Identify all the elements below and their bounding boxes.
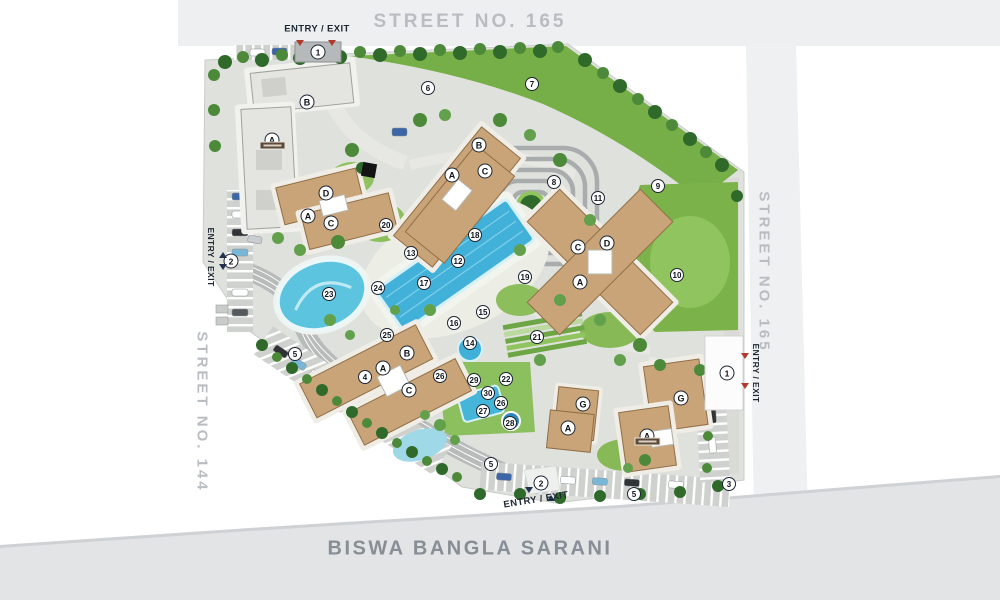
entry-exit-label: ENTRY / EXIT xyxy=(206,227,216,286)
site-marker-26: 26 xyxy=(433,369,447,383)
gate-arrow-icon xyxy=(219,264,227,274)
site-marker-14: 14 xyxy=(463,336,477,350)
site-marker-6: 6 xyxy=(421,81,435,95)
site-marker-11: 11 xyxy=(591,191,605,205)
tower-marker-a: A xyxy=(301,209,316,224)
tower-marker-a: A xyxy=(445,168,460,183)
tower-name-plate xyxy=(259,142,285,150)
gate-number: 1 xyxy=(311,45,326,60)
site-marker-5: 5 xyxy=(484,457,498,471)
site-marker-3: 3 xyxy=(722,477,736,491)
street-label-144-left: STREET NO. 144 xyxy=(194,331,211,492)
site-marker-12: 12 xyxy=(451,254,465,268)
site-marker-22: 22 xyxy=(499,372,513,386)
site-marker-10: 10 xyxy=(670,268,684,282)
site-marker-7: 7 xyxy=(525,77,539,91)
site-marker-25: 25 xyxy=(380,328,394,342)
site-marker-18: 18 xyxy=(468,228,482,242)
site-marker-24: 24 xyxy=(371,281,385,295)
gate-arrow-icon xyxy=(741,383,749,393)
gate-arrow-icon xyxy=(219,248,227,258)
tower-marker-c: C xyxy=(571,240,586,255)
tower-marker-b: B xyxy=(300,95,315,110)
site-marker-9: 9 xyxy=(651,179,665,193)
entry-exit-label: ENTRY / EXIT xyxy=(751,343,761,402)
tower-marker-c: C xyxy=(478,164,493,179)
tower-marker-a: A xyxy=(376,361,391,376)
site-marker-8: 8 xyxy=(547,175,561,189)
tower-marker-a: A xyxy=(265,133,280,148)
tower-marker-c: C xyxy=(402,383,417,398)
site-marker-16: 16 xyxy=(447,316,461,330)
site-marker-4: 4 xyxy=(358,370,372,384)
street-label-165-top: STREET NO. 165 xyxy=(374,11,567,33)
tower-marker-b: B xyxy=(400,346,415,361)
tower-marker-a: A xyxy=(561,421,576,436)
site-marker-19: 19 xyxy=(518,270,532,284)
street-label-biswa-bangla-sarani: BISWA BANGLA SARANI xyxy=(328,538,613,561)
site-marker-20: 20 xyxy=(379,218,393,232)
gate-arrow-icon xyxy=(741,353,749,363)
site-marker-15: 15 xyxy=(476,305,490,319)
map-overlay: STREET NO. 165 STREET NO. 165 STREET NO.… xyxy=(0,0,1000,600)
gate-arrow-icon xyxy=(328,40,336,50)
site-marker-21: 21 xyxy=(530,330,544,344)
site-marker-27: 27 xyxy=(476,404,490,418)
tower-marker-d: D xyxy=(600,236,615,251)
tower-marker-g: G xyxy=(674,391,689,406)
site-marker-17: 17 xyxy=(417,276,431,290)
site-marker-23: 23 xyxy=(322,287,336,301)
tower-name-plate xyxy=(634,438,660,446)
tower-marker-d: D xyxy=(319,186,334,201)
site-marker-26: 26 xyxy=(494,396,508,410)
tower-marker-g: G xyxy=(576,397,591,412)
gate-number: 1 xyxy=(720,366,735,381)
site-marker-5: 5 xyxy=(627,487,641,501)
gate-arrow-icon xyxy=(296,40,304,50)
tower-marker-c: C xyxy=(324,216,339,231)
tower-marker-a: A xyxy=(640,429,655,444)
site-plan-page: STREET NO. 165 STREET NO. 165 STREET NO.… xyxy=(0,0,1000,600)
site-marker-30: 30 xyxy=(481,386,495,400)
street-label-165-right: STREET NO. 165 xyxy=(756,191,773,352)
site-marker-29: 29 xyxy=(467,373,481,387)
site-marker-5: 5 xyxy=(288,347,302,361)
site-marker-13: 13 xyxy=(404,246,418,260)
entry-exit-label: ENTRY / EXIT xyxy=(284,24,350,35)
gate-number: 2 xyxy=(534,476,549,491)
tower-marker-a: A xyxy=(573,275,588,290)
entry-exit-label: ENTRY / EXIT xyxy=(503,489,569,510)
tower-marker-b: B xyxy=(472,138,487,153)
site-marker-28: 28 xyxy=(503,416,517,430)
